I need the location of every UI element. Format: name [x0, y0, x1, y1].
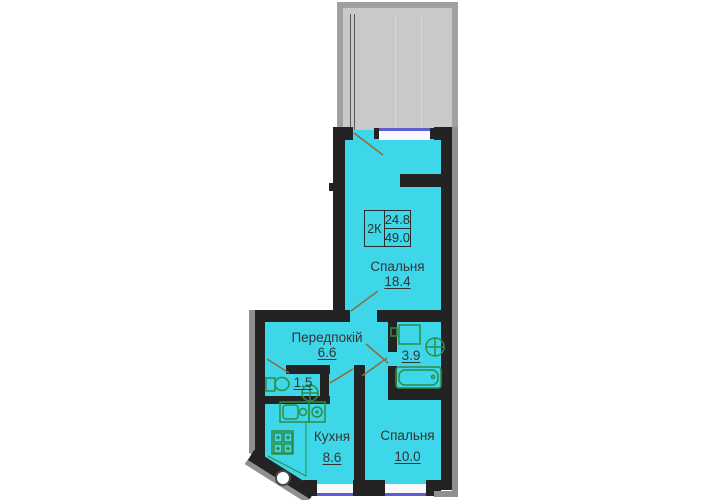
wall-bath-left	[388, 366, 397, 400]
room-kitchen: Кухня 8.6	[292, 429, 372, 465]
wall-kitchen-divider	[354, 365, 365, 490]
terrace-plank-line	[421, 14, 422, 130]
terrace-inner-line	[350, 14, 351, 130]
room-name: Спальня	[370, 428, 445, 443]
wall-pilaster	[400, 174, 441, 187]
room-bedroom-bottom: Спальня 10.0	[370, 428, 445, 464]
wall-notch	[329, 183, 335, 191]
wall-hall-top	[377, 310, 441, 322]
wall-wc-bottom	[265, 396, 330, 404]
room-area: 1.5	[287, 375, 319, 390]
room-bathroom: 3.9	[390, 348, 432, 363]
window-glass	[379, 131, 430, 140]
room-name: Передпокій	[277, 330, 377, 345]
wall	[333, 127, 345, 315]
window-glass	[385, 484, 426, 493]
wall-left-exterior	[255, 310, 265, 460]
room-hallway: Передпокій 6.6	[277, 330, 377, 360]
room-area: 10.0	[370, 449, 445, 464]
wall-outer-band	[434, 491, 452, 497]
window-glass	[317, 484, 353, 493]
room-name: Кухня	[292, 429, 372, 444]
terrace-inner-line	[354, 14, 355, 130]
unit-area-total: 49.0	[385, 229, 410, 246]
window-frame	[385, 493, 426, 496]
room-area: 8.6	[292, 450, 372, 465]
floor-plan: 2К 24.8 49.0 Спальня 18.4 Передпокій 6.6…	[0, 0, 707, 500]
wall-outer-band	[452, 127, 458, 497]
room-area: 18.4	[350, 274, 445, 289]
wall-bottom	[303, 480, 317, 496]
wall	[333, 127, 353, 140]
room-area: 6.6	[277, 345, 377, 360]
wall-outer-band	[249, 310, 255, 458]
terrace	[337, 2, 458, 130]
room-name: Спальня	[350, 259, 445, 274]
wall-hall-top	[255, 310, 350, 322]
room-area: 3.9	[390, 348, 432, 363]
room-bedroom-top: Спальня 18.4	[350, 259, 445, 289]
room-wc: 1.5	[287, 375, 319, 390]
terrace-plank-line	[395, 14, 396, 130]
unit-area-living: 24.8	[385, 211, 410, 229]
unit-info-box: 2К 24.8 49.0	[364, 210, 411, 247]
unit-type-label: 2К	[365, 211, 385, 246]
wall-bottom	[353, 480, 385, 496]
window-frame	[317, 493, 353, 496]
wall-bath-bottom	[397, 388, 441, 400]
